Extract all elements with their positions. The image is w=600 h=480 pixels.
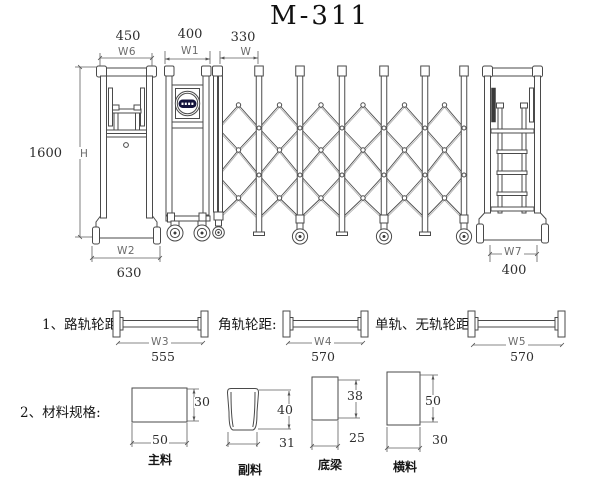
- dim-w2-code: W2: [117, 245, 135, 257]
- track-spacing-row: 1、路轨轮距: W3 555 角轨轮距: W4 570 单轨、无轨轮距:: [42, 311, 565, 364]
- axle2-dim-value: 570: [311, 349, 335, 364]
- dimension-w: 330 W: [220, 30, 258, 64]
- profile-bottom-beam: 38 25 底梁: [312, 377, 365, 472]
- secondary-width: 31: [279, 435, 295, 450]
- dim-w6-value: 450: [116, 29, 141, 44]
- gate-drawing-canvas: M-311: [0, 0, 600, 480]
- beam-width: 25: [349, 430, 365, 445]
- lead-gate-post: [213, 66, 225, 238]
- axle-drawing-2: W4 570: [283, 311, 368, 364]
- secondary-height: 40: [277, 402, 293, 417]
- head-post-front-view: [93, 66, 161, 244]
- dim-w7-value: 400: [502, 263, 527, 278]
- cross-height: 50: [425, 393, 441, 408]
- axle3-dim-code: W5: [508, 336, 526, 348]
- profile-main-material: 30 50 主料: [132, 388, 210, 467]
- dimension-w1: 400 W1: [165, 27, 210, 64]
- axle1-dim-code: W3: [151, 336, 169, 348]
- cross-label: 横料: [393, 459, 417, 474]
- spacing-label-2: 角轨轮距:: [218, 317, 277, 333]
- profile-secondary-material: 40 31 副料: [228, 389, 295, 478]
- motor-post-front-view: [165, 66, 212, 241]
- dimension-w2: W2 630: [92, 245, 160, 281]
- dim-h-value: 1600: [29, 146, 62, 161]
- main-height: 30: [194, 394, 210, 409]
- dim-w-value: 330: [231, 30, 256, 45]
- secondary-label: 副料: [238, 462, 262, 477]
- dim-w-code: W: [241, 46, 252, 58]
- tail-post-rear-view: [477, 66, 549, 243]
- axle1-dim-value: 555: [151, 349, 175, 364]
- spacing-label-1: 1、路轨轮距:: [42, 317, 123, 333]
- materials-heading: 2、材料规格:: [20, 405, 101, 421]
- dim-w7-code: W7: [504, 246, 522, 258]
- dim-w2-value: 630: [117, 266, 142, 281]
- brand-logo-badge: [179, 100, 197, 109]
- spacing-label-3: 单轨、无轨轮距:: [375, 317, 474, 333]
- dim-w1-code: W1: [181, 45, 199, 57]
- main-label: 主料: [148, 452, 172, 467]
- dim-w1-value: 400: [178, 27, 203, 42]
- dimension-height: 1600 H: [29, 67, 97, 237]
- scissor-gate-posts: [254, 66, 472, 244]
- technical-drawing-page: M-311: [0, 0, 600, 480]
- page-title: M-311: [270, 1, 370, 31]
- axle-drawing-1: W3 555: [113, 311, 208, 364]
- cross-width: 30: [432, 432, 448, 447]
- main-width: 50: [152, 432, 168, 447]
- dim-h-code: H: [80, 148, 88, 160]
- beam-height: 38: [347, 388, 363, 403]
- material-spec-row: 2、材料规格: 30 50 主料 40 31 副料: [20, 372, 448, 477]
- profile-cross-material: 50 30 横料: [387, 372, 448, 474]
- axle-drawing-3: W5 570: [468, 311, 565, 364]
- axle2-dim-code: W4: [314, 336, 332, 348]
- dim-w6-code: W6: [118, 46, 136, 58]
- dimension-w7: W7 400: [490, 245, 537, 278]
- dimension-w6: 450 W6: [100, 29, 152, 66]
- beam-label: 底梁: [318, 457, 342, 472]
- axle3-dim-value: 570: [510, 349, 534, 364]
